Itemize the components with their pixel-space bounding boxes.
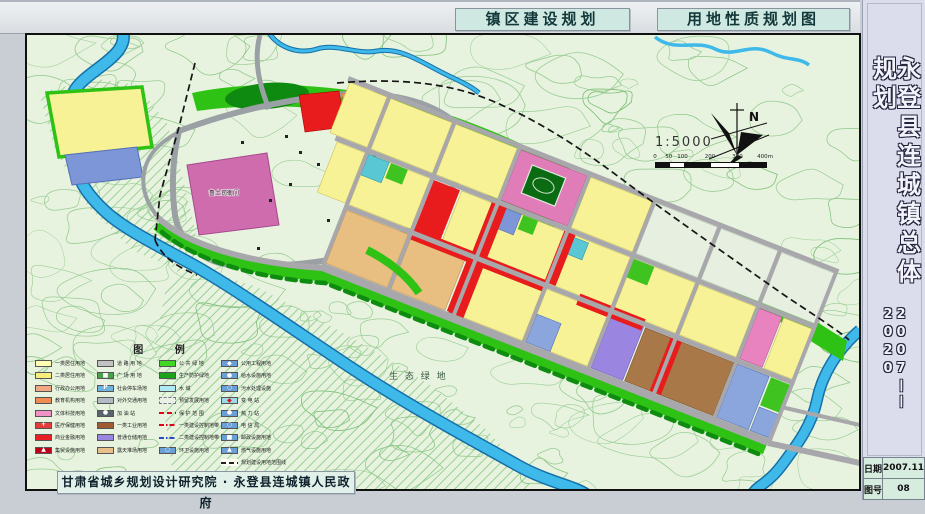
legend-label: 广 场 用 地 [117, 372, 142, 379]
date-label: 日期 [864, 458, 883, 479]
title-box-construction-plan: 镇区建设规划 [455, 8, 630, 31]
legend-item: 一类居住用地 [35, 360, 95, 367]
legend-item: +医疗保健用地 [35, 422, 95, 429]
legend-item: 二类居住用地 [35, 372, 95, 379]
legend-swatch [159, 422, 176, 429]
legend-label: 行政办公用地 [55, 385, 85, 392]
legend-label: 电 信 局 [241, 422, 259, 429]
scale-bar-segment [739, 163, 767, 167]
date-value: 2007.11 [883, 458, 925, 479]
legend-swatch [159, 410, 176, 417]
legend-swatch: P [97, 385, 114, 392]
legend-label: 道 路 用 地 [117, 360, 142, 367]
legend-item: ■广 场 用 地 [97, 372, 157, 379]
legend-swatch: ◆ [221, 360, 238, 367]
scale-tick: 300 [732, 154, 743, 160]
header-strip: 镇区建设规划 用地性质规划图 [0, 0, 860, 34]
plan-years: 2007——2020 [882, 307, 908, 455]
legend-label: 二类居住用地 [55, 372, 85, 379]
scale-tick: 0 [653, 154, 657, 160]
legend-swatch: ■ [97, 372, 114, 379]
legend-label: 二类建设控制地带 [179, 434, 219, 441]
yamen-label: 鲁土司衙门 [209, 189, 239, 197]
legend-item: 一类建设控制地带 [159, 422, 219, 429]
legend-label: 普通仓储用地 [117, 434, 147, 441]
planning-sheet-page: { "header": { "title_left": "镇区建设规划", "t… [0, 0, 925, 500]
sheet-info-table: 日期 2007.11 图号 08 [863, 457, 925, 500]
legend-label: 公 共 绿 地 [179, 360, 204, 367]
sidebar-inner-frame: 永登县连城镇总体规划 2007——2020 [867, 3, 922, 456]
legend-column: ◆公用工程用地●给水设施用地○污水处理设施◆变 电 站●热 力 站○电 信 局■… [221, 360, 283, 472]
legend-swatch [221, 459, 238, 466]
sheet-number-label: 图号 [864, 479, 883, 500]
legend-item: ▲燃气设施用地 [221, 447, 283, 454]
legend-swatch: ■ [221, 434, 238, 441]
legend-column: 一类居住用地二类居住用地行政办公用地教育机构用地文体科技用地+医疗保健用地商业金… [35, 360, 95, 472]
legend-item: 保 护 范 围 [159, 410, 219, 417]
legend-item: 文体科技用地 [35, 410, 95, 417]
legend-item: ○污水处理设施 [221, 385, 283, 392]
legend-label: 集贸设施用地 [55, 447, 85, 454]
legend-item: 水 域 [159, 385, 219, 392]
legend-label: 一类居住用地 [55, 360, 85, 367]
legend-swatch [159, 434, 176, 441]
legend-item: ▲集贸设施用地 [35, 447, 95, 454]
legend-swatch: ▲ [221, 447, 238, 454]
scale-bar [655, 162, 767, 168]
legend-item: 二类建设控制地带 [159, 434, 219, 441]
map-legend: 图 例 一类居住用地二类居住用地行政办公用地教育机构用地文体科技用地+医疗保健用… [35, 341, 283, 472]
legend-item: 普通仓储用地 [97, 434, 157, 441]
legend-title: 图 例 [35, 341, 283, 356]
legend-swatch [159, 397, 176, 404]
sheet-number-value: 08 [883, 479, 925, 500]
legend-label: 医疗保健用地 [55, 422, 85, 429]
scale-bar-segment [656, 163, 670, 167]
legend-item: ○电 信 局 [221, 422, 283, 429]
legend-item: ◆变 电 站 [221, 397, 283, 404]
legend-label: 保 护 范 围 [179, 410, 204, 417]
legend-item: 商业金融用地 [35, 434, 95, 441]
legend-label: 文体科技用地 [55, 410, 85, 417]
legend-swatch: + [35, 422, 52, 429]
legend-label: 热 力 站 [241, 410, 259, 417]
legend-label: 变 电 站 [241, 397, 259, 404]
plan-title-vertical: 永登县连城镇总体规划 [871, 56, 919, 299]
legend-label: 预留发展用地 [179, 397, 209, 404]
legend-swatch [35, 360, 52, 367]
legend-swatch [97, 360, 114, 367]
legend-label: 水 域 [179, 385, 191, 392]
plan-years-start: 2007 [894, 307, 909, 379]
scale-tick: 400m [757, 154, 773, 160]
legend-item: 一类工业用地 [97, 422, 157, 429]
legend-label: 公用工程用地 [241, 360, 271, 367]
table-row: 日期 2007.11 [864, 458, 925, 479]
legend-label: 一类建设控制地带 [179, 422, 219, 429]
scale-tick: 50 [665, 154, 672, 160]
legend-label: 露天堆场用地 [117, 447, 147, 454]
north-label: N [749, 110, 759, 124]
legend-swatch [35, 397, 52, 404]
legend-label: 规划建设用地范围线 [241, 459, 286, 466]
legend-item: 对外交通用地 [97, 397, 157, 404]
scale-ticks: 050100200300400m [655, 154, 785, 162]
legend-item: 行政办公用地 [35, 385, 95, 392]
scale-box: 1:5000 050100200300400m [655, 135, 785, 168]
eco-label: 生 态 绿 地 [389, 370, 448, 382]
legend-item: ●给水设施用地 [221, 372, 283, 379]
legend-item: ■邮政设施用地 [221, 434, 283, 441]
legend-swatch: ○ [221, 422, 238, 429]
legend-swatch: ○ [159, 447, 176, 454]
legend-swatch [35, 410, 52, 417]
legend-swatch [97, 434, 114, 441]
map-canvas: 鲁土司衙门 [25, 33, 861, 491]
legend-label: 环卫设施用地 [179, 447, 209, 454]
title-box-landuse-map: 用地性质规划图 [657, 8, 850, 31]
scale-ratio: 1:5000 [655, 135, 785, 150]
legend-label: 邮政设施用地 [241, 434, 271, 441]
legend-column: 道 路 用 地■广 场 用 地P社会停车场地对外交通用地●加 油 站一类工业用地… [97, 360, 157, 472]
organization-box: 甘肃省城乡规划设计研究院 · 永登县连城镇人民政府 [57, 471, 355, 494]
plan-years-end: 2020 [881, 307, 896, 379]
legend-label: 给水设施用地 [241, 372, 271, 379]
legend-item: ●加 油 站 [97, 410, 157, 417]
legend-item: 生产防护绿地 [159, 372, 219, 379]
legend-item: ○环卫设施用地 [159, 447, 219, 454]
legend-item: 公 共 绿 地 [159, 360, 219, 367]
legend-item: ◆公用工程用地 [221, 360, 283, 367]
legend-label: 一类工业用地 [117, 422, 147, 429]
legend-swatch: ◆ [221, 397, 238, 404]
legend-swatch: ● [221, 410, 238, 417]
legend-swatch [159, 385, 176, 392]
legend-swatch [97, 422, 114, 429]
legend-swatch: ● [97, 410, 114, 417]
scale-tick: 200 [705, 154, 716, 160]
legend-item: 露天堆场用地 [97, 447, 157, 454]
legend-swatch [35, 372, 52, 379]
legend-item: 预留发展用地 [159, 397, 219, 404]
legend-item: 教育机构用地 [35, 397, 95, 404]
legend-label: 社会停车场地 [117, 385, 147, 392]
legend-item: 规划建设用地范围线 [221, 459, 283, 466]
scale-tick: 100 [677, 154, 688, 160]
legend-swatch [159, 360, 176, 367]
legend-item: ●热 力 站 [221, 410, 283, 417]
legend-label: 污水处理设施 [241, 385, 271, 392]
legend-column: 公 共 绿 地生产防护绿地水 域预留发展用地保 护 范 围一类建设控制地带二类建… [159, 360, 219, 472]
scale-bar-segment [684, 163, 712, 167]
legend-label: 对外交通用地 [117, 397, 147, 404]
legend-label: 商业金融用地 [55, 434, 85, 441]
legend-swatch [35, 385, 52, 392]
table-row: 图号 08 [864, 479, 925, 500]
legend-swatch [97, 397, 114, 404]
legend-item: 道 路 用 地 [97, 360, 157, 367]
legend-swatch [159, 372, 176, 379]
legend-label: 教育机构用地 [55, 397, 85, 404]
legend-label: 生产防护绿地 [179, 372, 209, 379]
sidebar-title-panel: 永登县连城镇总体规划 2007——2020 日期 2007.11 图号 08 [862, 0, 925, 500]
legend-swatch: ● [221, 372, 238, 379]
legend-label: 燃气设施用地 [241, 447, 271, 454]
legend-swatch: ▲ [35, 447, 52, 454]
legend-swatch: ○ [221, 385, 238, 392]
legend-swatch [97, 447, 114, 454]
legend-label: 加 油 站 [117, 410, 135, 417]
plan-years-dash: —— [894, 379, 909, 411]
legend-swatch [35, 434, 52, 441]
legend-item: P社会停车场地 [97, 385, 157, 392]
